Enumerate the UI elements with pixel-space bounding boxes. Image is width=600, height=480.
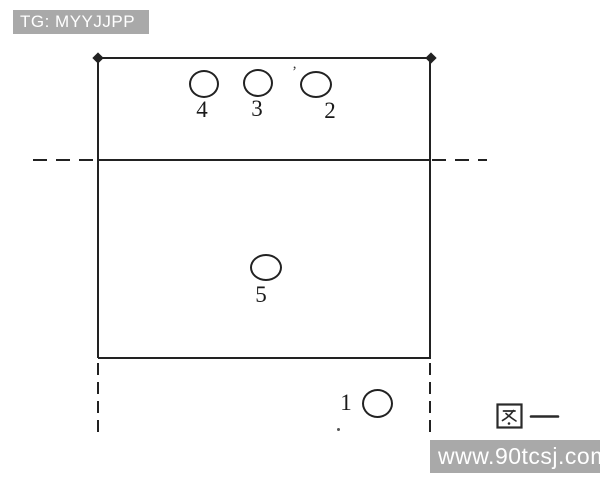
player-number: 5 xyxy=(251,283,271,306)
net-line xyxy=(98,57,431,59)
net-post-marker-right xyxy=(425,52,436,63)
player-number: 4 xyxy=(192,98,212,121)
site-watermark: www.90tcsj.com xyxy=(430,440,600,473)
player-circle xyxy=(243,69,273,97)
stray-mark-apostrophe: ’ xyxy=(292,64,297,81)
figure-caption-glyphs xyxy=(495,400,561,432)
attack-line xyxy=(98,159,431,161)
figure-canvas: TG: MYYJJPP 4 3 2 xyxy=(0,0,600,480)
attack-line-ext-right xyxy=(432,159,487,161)
right-sideline xyxy=(429,58,431,358)
player-circle xyxy=(362,389,393,418)
stray-mark-dot xyxy=(337,428,340,431)
player-circle xyxy=(300,71,332,98)
player-number: 1 xyxy=(338,391,354,414)
player-number: 3 xyxy=(247,97,267,120)
sideline-ext-dashed-right xyxy=(429,363,431,439)
figure-caption xyxy=(495,400,561,432)
end-line xyxy=(98,357,431,359)
tg-watermark-badge: TG: MYYJJPP xyxy=(13,10,149,34)
attack-line-ext-left xyxy=(33,159,97,161)
player-circle xyxy=(189,70,219,98)
sideline-ext-dashed-left xyxy=(97,363,99,437)
player-number: 2 xyxy=(320,99,340,122)
player-circle xyxy=(250,254,282,281)
left-sideline xyxy=(97,58,99,358)
